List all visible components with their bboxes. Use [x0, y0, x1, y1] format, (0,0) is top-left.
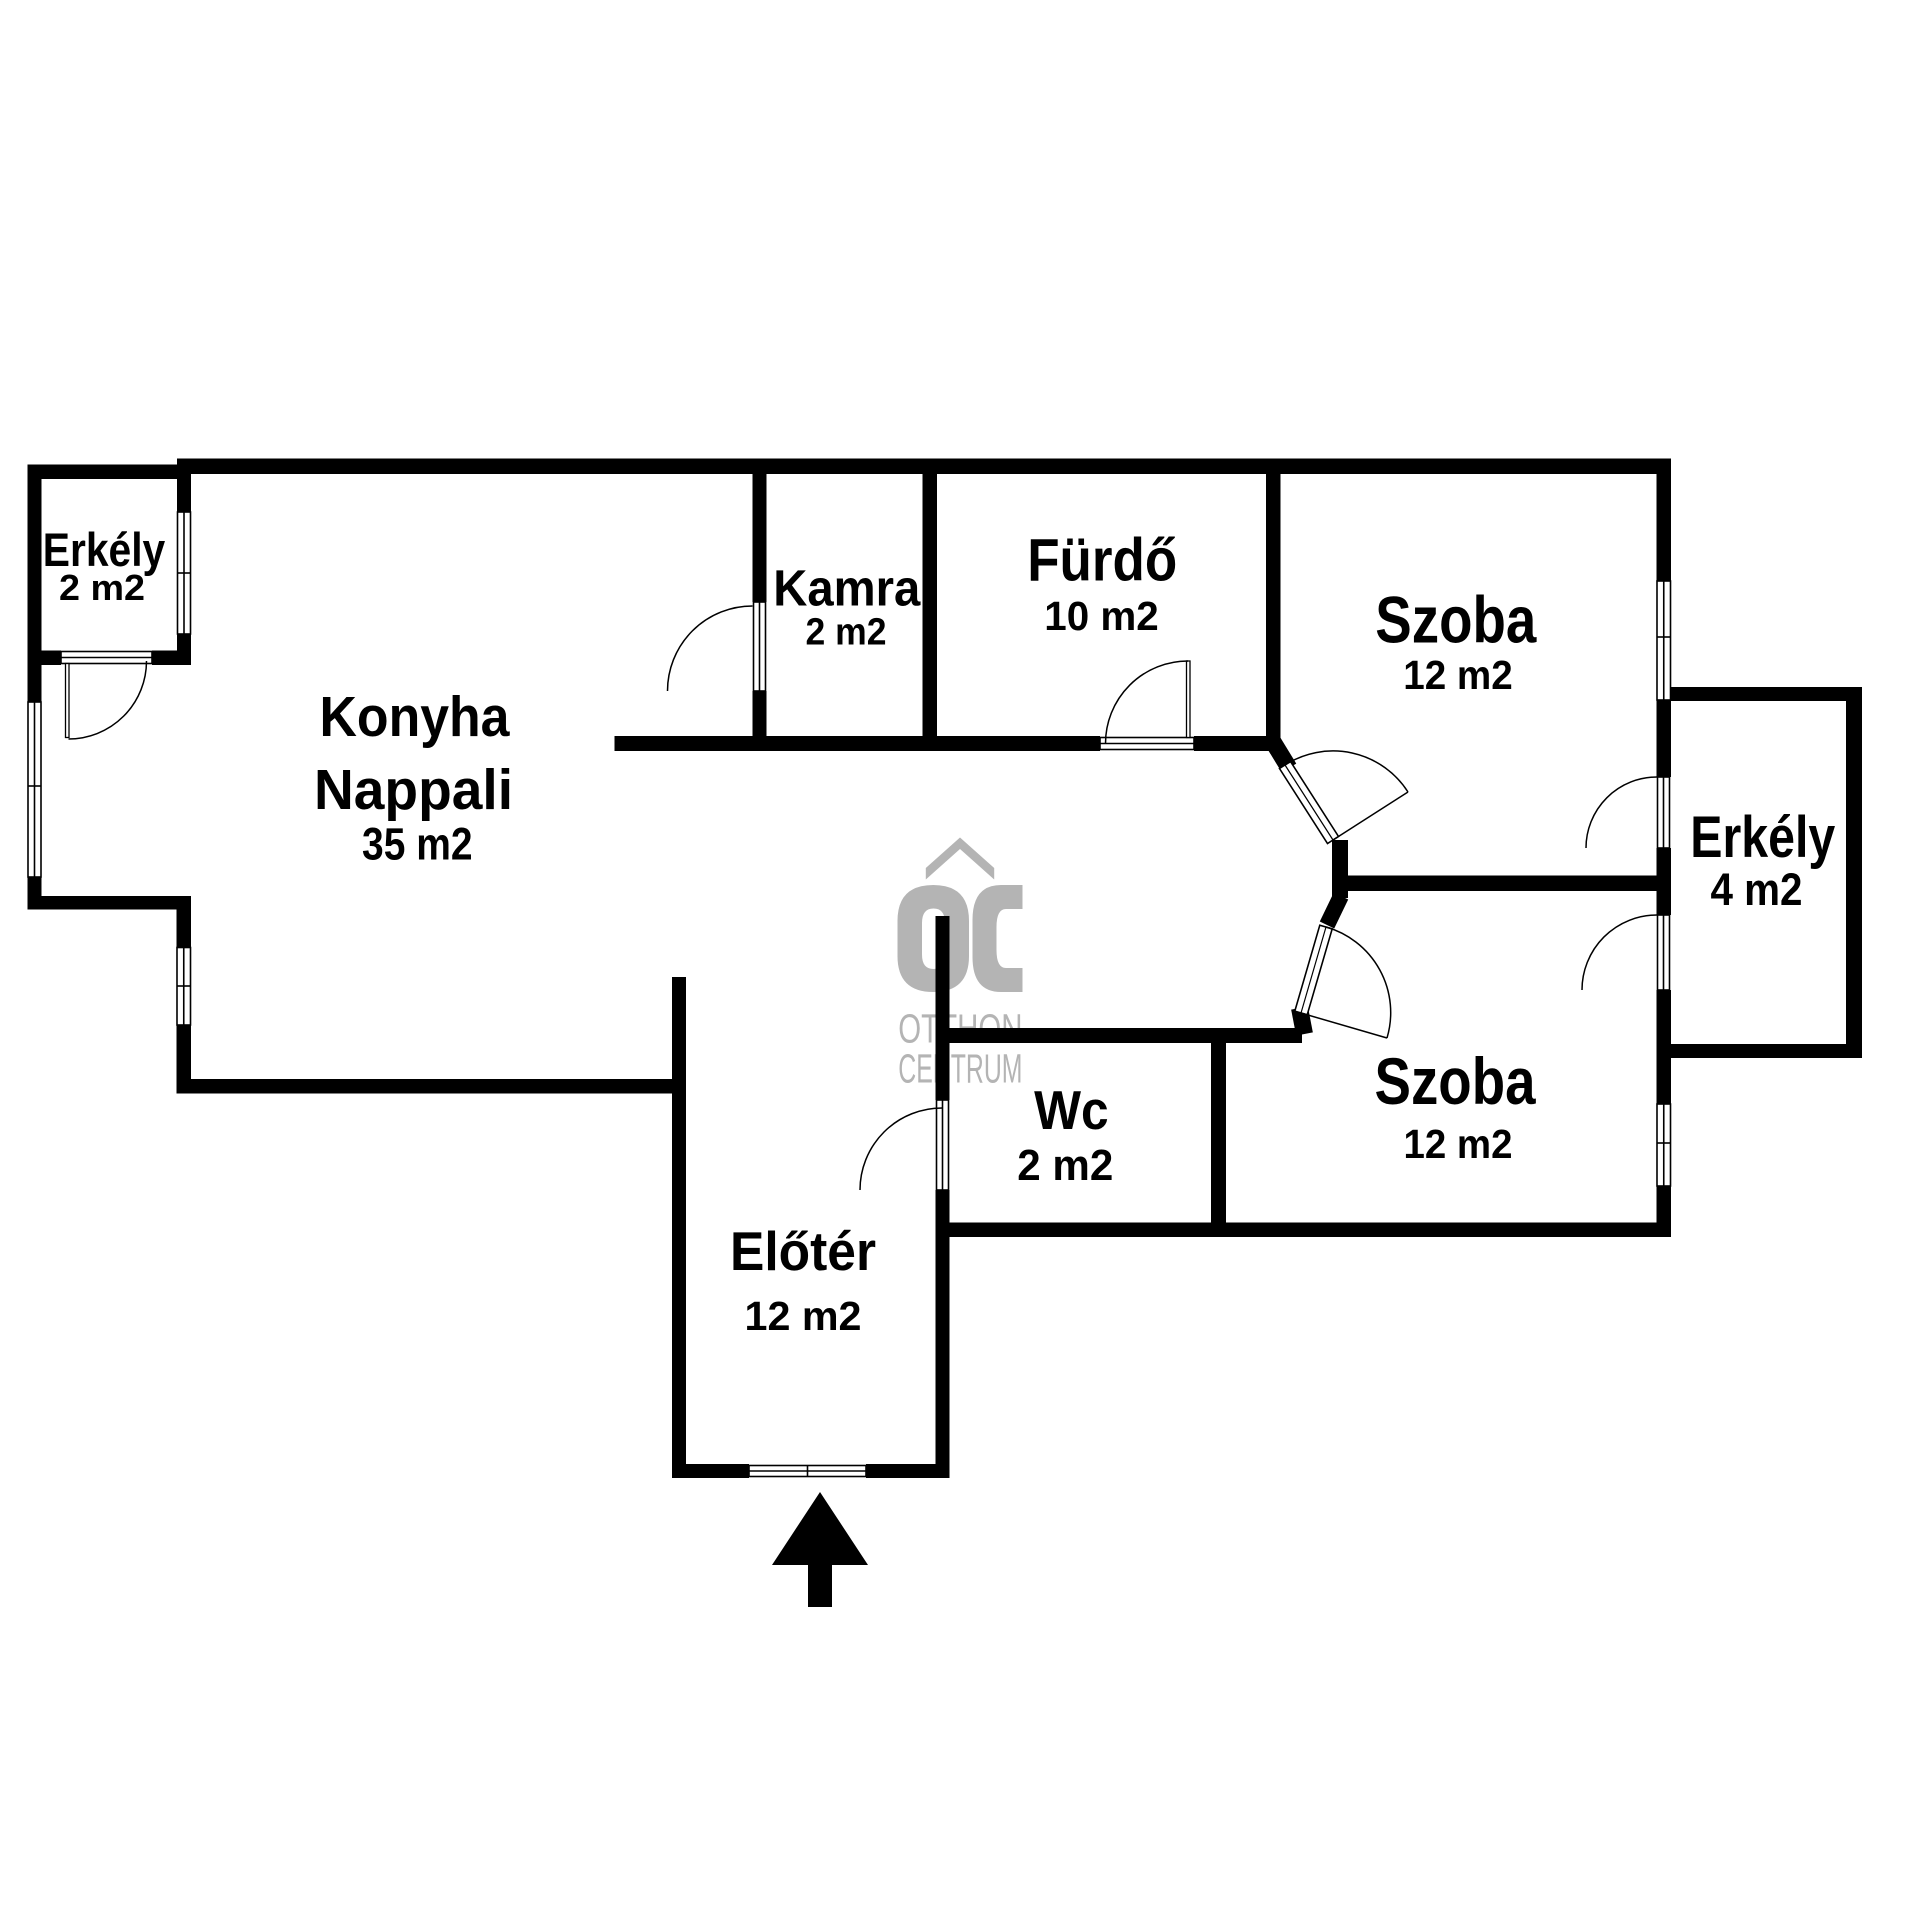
svg-text:Előtér: Előtér: [730, 1220, 876, 1282]
svg-text:Kamra: Kamra: [773, 560, 921, 617]
svg-text:2 m2: 2 m2: [1017, 1141, 1113, 1190]
svg-text:12 m2: 12 m2: [745, 1293, 862, 1339]
svg-text:Szoba: Szoba: [1375, 1044, 1537, 1118]
svg-text:4 m2: 4 m2: [1711, 864, 1803, 915]
svg-text:Szoba: Szoba: [1375, 583, 1537, 657]
svg-text:12 m2: 12 m2: [1404, 1121, 1513, 1167]
svg-text:Erkély: Erkély: [1690, 805, 1835, 870]
svg-text:Wc: Wc: [1034, 1079, 1109, 1141]
svg-text:12 m2: 12 m2: [1403, 652, 1513, 698]
svg-text:10 m2: 10 m2: [1044, 593, 1159, 639]
svg-text:Nappali: Nappali: [314, 758, 513, 822]
svg-text:2 m2: 2 m2: [59, 567, 145, 608]
svg-text:35 m2: 35 m2: [362, 819, 473, 870]
svg-text:Fürdő: Fürdő: [1027, 527, 1177, 594]
svg-text:CENTRUM: CENTRUM: [898, 1046, 1022, 1092]
svg-text:Konyha: Konyha: [320, 685, 511, 749]
svg-text:2 m2: 2 m2: [806, 612, 887, 654]
